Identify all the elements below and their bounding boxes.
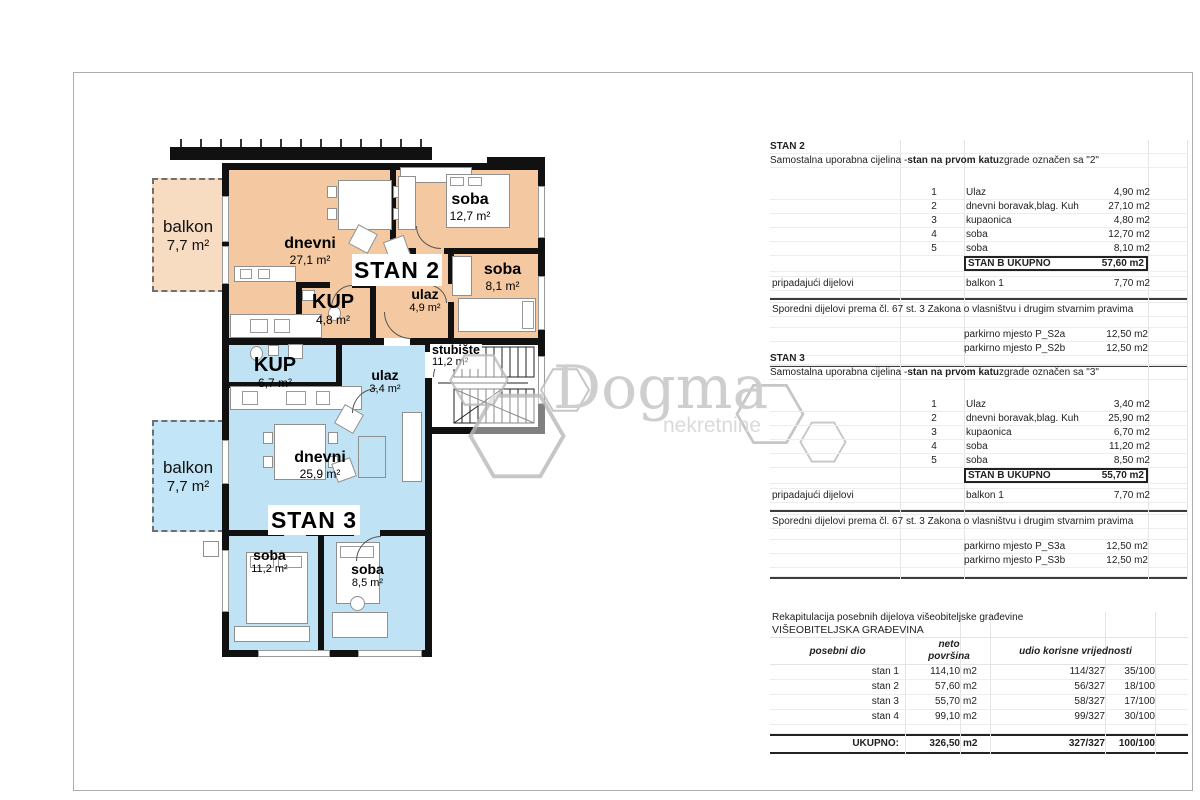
room-area: 27,1 m²: [255, 254, 365, 267]
pripadajuci-area: 7,70 m2: [1086, 489, 1152, 502]
sink: [242, 391, 258, 405]
room-label-dnevni-stan3: dnevni 25,9 m²: [265, 450, 375, 480]
room-area: 12,7 m²: [425, 210, 515, 223]
sporedni-row: Sporedni dijelovi prema čl. 67 st. 3 Zak…: [770, 515, 1188, 529]
stan-name: stan 4: [770, 710, 905, 724]
spacer: [770, 529, 1188, 540]
floor-plan-sheet: balkon 7,7 m² balkon 7,7 m²: [0, 0, 1200, 800]
unit-area: 27,10 m2: [1086, 200, 1152, 213]
room-label-kup-stan2: KUP 4,8 m²: [300, 292, 366, 327]
parking-row: parkirno mjesto P_S3b12,50 m2: [770, 554, 1188, 568]
subtitle-suffix: zgrade označen sa "3": [999, 366, 1099, 379]
table-subtitle-row: Samostalna uporabna cijelina - stan na p…: [770, 154, 1188, 168]
stove: [286, 391, 306, 405]
recap-total-row: UKUPNO:326,50m2327/327100/100: [770, 734, 1188, 754]
room-label-soba-112: soba 11,2 m²: [232, 548, 307, 575]
unit: m2: [960, 695, 990, 709]
spacer: [770, 317, 1188, 328]
pct: 35/100: [1105, 665, 1155, 679]
unit-area: 11,20 m2: [1086, 440, 1152, 453]
unit-name: Ulaz: [966, 398, 1086, 411]
room-label-soba-81: soba 8,1 m²: [460, 262, 545, 292]
unit-area: 4,80 m2: [1086, 214, 1152, 227]
stan-name: stan 2: [770, 680, 905, 694]
pct: 30/100: [1105, 710, 1155, 724]
unit-num: 4: [902, 440, 966, 453]
spacer: [770, 291, 1188, 298]
table-stan3: STAN 3 Samostalna uporabna cijelina - st…: [770, 352, 1188, 579]
stan2-title-box: STAN 2: [352, 254, 442, 286]
table-title-row: STAN 2: [770, 140, 1188, 154]
pripadajuci-row: pripadajući dijelovibalkon 17,70 m2: [770, 277, 1188, 291]
room-label-soba-85: soba 8,5 m²: [330, 562, 405, 589]
balcony-door: [222, 440, 229, 484]
window: [222, 196, 229, 242]
unit-row: 4soba11,20 m2: [770, 440, 1188, 454]
room-name: soba: [330, 562, 405, 577]
total-row: STAN B UKUPNO57,60 m2: [770, 256, 1188, 272]
subtitle-prefix: Samostalna uporabna cijelina -: [770, 366, 907, 379]
wall: [296, 282, 330, 288]
hob: [240, 269, 252, 279]
entry-door-stan2: [384, 338, 410, 346]
unit-name: soba: [966, 454, 1086, 467]
railing-top: [170, 147, 432, 160]
unit-num: 1: [902, 186, 966, 199]
unit-area: 12,70 m2: [1086, 228, 1152, 241]
unit-name: kupaonica: [966, 426, 1086, 439]
balcony-label: balkon: [163, 217, 213, 237]
wall: [444, 248, 545, 254]
unit-area: 25,90 m2: [1086, 412, 1152, 425]
bench: [234, 626, 310, 642]
total-share: 327/327: [990, 736, 1105, 752]
wardrobe: [398, 176, 416, 230]
parking-name: parkirno mjesto P_S3b: [964, 554, 1084, 567]
chair: [327, 186, 337, 198]
room-name: dnevni: [265, 450, 375, 467]
col-posebni-dio: posebni dio: [770, 646, 905, 657]
subtitle-suffix: zgrade označen sa "2": [999, 154, 1099, 167]
parking-area: 12,50 m2: [1084, 554, 1150, 567]
table-title: STAN 3: [770, 352, 805, 365]
unit-name: soba: [966, 440, 1086, 453]
parking-row: parkirno mjesto P_S2a12,50 m2: [770, 328, 1188, 342]
room-name: KUP: [300, 292, 366, 313]
wall: [336, 338, 342, 388]
wall: [370, 282, 376, 344]
room-name: KUP: [240, 355, 310, 376]
section-divider: [770, 577, 1188, 579]
total-label: STAN B UKUPNO: [966, 470, 1102, 481]
room-label-ulaz-stan3: ulaz 3,4 m²: [352, 368, 418, 395]
stove: [250, 319, 268, 333]
parking-name: parkirno mjesto P_S2a: [964, 328, 1084, 341]
recap-row: stan 499,10m299/32730/100: [770, 710, 1188, 725]
stan-name: stan 1: [770, 665, 905, 679]
room-name: dnevni: [255, 236, 365, 253]
sink: [274, 319, 290, 333]
table-subtitle-row: Samostalna uporabna cijelina - stan na p…: [770, 366, 1188, 380]
room-name: soba: [232, 548, 307, 563]
dining-table: [338, 180, 392, 230]
window: [538, 186, 545, 238]
stan-area: 114,10: [905, 665, 960, 679]
room-name: soba: [460, 262, 545, 279]
pct: 18/100: [1105, 680, 1155, 694]
chair: [327, 208, 337, 220]
unit-row: 1Ulaz3,40 m2: [770, 398, 1188, 412]
unit-area: 8,50 m2: [1086, 454, 1152, 467]
balcony-label: balkon: [163, 458, 213, 478]
unit-num: 1: [902, 398, 966, 411]
pripadajuci-label: pripadajući dijelovi: [770, 489, 902, 502]
unit-area: 3,40 m2: [1086, 398, 1152, 411]
desk: [332, 612, 388, 638]
total-label: UKUPNO:: [770, 736, 905, 752]
stan-area: 99,10: [905, 710, 960, 724]
recap-subtitle-row: VIŠEOBITELJSKA GRAĐEVINA: [770, 624, 1188, 637]
pripadajuci-name: balkon 1: [966, 489, 1086, 502]
spacer: [770, 503, 1188, 510]
sofa: [402, 412, 422, 482]
share: 58/327: [990, 695, 1105, 709]
unit-name: dnevni boravak,blag. Kuh: [966, 200, 1086, 213]
total-area: 57,60 m2: [1102, 258, 1146, 269]
stan-area: 55,70: [905, 695, 960, 709]
wall: [318, 536, 324, 657]
unit-num: 3: [902, 426, 966, 439]
parking-name: parkirno mjesto P_S3a: [964, 540, 1084, 553]
table-title: STAN 2: [770, 140, 805, 153]
unit-num: 3: [902, 214, 966, 227]
parking-area: 12,50 m2: [1084, 328, 1150, 341]
pillow: [522, 301, 534, 329]
unit-row: 3kupaonica4,80 m2: [770, 214, 1188, 228]
room-area: 25,9 m²: [265, 468, 375, 481]
unit-area: 8,10 m2: [1086, 242, 1152, 255]
window: [258, 650, 330, 657]
utility-box: [203, 541, 219, 557]
window: [222, 550, 229, 612]
balcony-stan2: balkon 7,7 m²: [152, 178, 224, 292]
unit-area: 6,70 m2: [1086, 426, 1152, 439]
stan3-title-box: STAN 3: [268, 505, 360, 535]
chair: [328, 432, 338, 444]
unit-name: kupaonica: [966, 214, 1086, 227]
unit: m2: [960, 736, 990, 752]
sporedni-row: Sporedni dijelovi prema čl. 67 st. 3 Zak…: [770, 303, 1188, 317]
spacer: [770, 168, 1188, 186]
recap-row: stan 257,60m256/32718/100: [770, 680, 1188, 695]
railing-ticks: [180, 139, 426, 147]
col-udio: udio korisne vrijednosti: [993, 646, 1158, 657]
balcony-area: 7,7 m²: [167, 237, 210, 254]
pripadajuci-name: balkon 1: [966, 277, 1086, 290]
unit-name: soba: [966, 228, 1086, 241]
table-recap: Rekapitulacija posebnih dijelova višeobi…: [770, 612, 1188, 754]
fridge: [316, 391, 330, 405]
pct: 17/100: [1105, 695, 1155, 709]
total-area: 55,70 m2: [1102, 470, 1146, 481]
unit-row: 3kupaonica6,70 m2: [770, 426, 1188, 440]
table-title-row: STAN 3: [770, 352, 1188, 366]
unit-num: 5: [902, 454, 966, 467]
room-area: 4,9 m²: [392, 303, 458, 315]
unit-num: 5: [902, 242, 966, 255]
balcony-door: [222, 246, 229, 284]
parking-row: parkirno mjesto P_S3a12,50 m2: [770, 540, 1188, 554]
recap-header-row: posebni dio netopovršina udio korisne vr…: [770, 637, 1188, 665]
recap-row: stan 355,70m258/32717/100: [770, 695, 1188, 710]
room-label-dnevni-stan2: dnevni 27,1 m²: [255, 236, 365, 266]
unit-name: soba: [966, 242, 1086, 255]
balcony-area: 7,7 m²: [167, 478, 210, 495]
recap-row: stan 1114,10m2114/32735/100: [770, 665, 1188, 680]
unit-row: 2dnevni boravak,blag. Kuh27,10 m2: [770, 200, 1188, 214]
table-stan2: STAN 2 Samostalna uporabna cijelina - st…: [770, 140, 1188, 367]
unit-row: 2dnevni boravak,blag. Kuh25,90 m2: [770, 412, 1188, 426]
recap-title: Rekapitulacija posebnih dijelova višeobi…: [772, 612, 1023, 624]
stan-name: stan 3: [770, 695, 905, 709]
unit: m2: [960, 710, 990, 724]
pillow: [450, 177, 464, 186]
room-label-soba-127: soba 12,7 m²: [425, 192, 515, 222]
share: 99/327: [990, 710, 1105, 724]
subtitle-bold: stan na prvom katu: [907, 154, 999, 167]
room-area: 8,5 m²: [330, 578, 405, 590]
unit: m2: [960, 665, 990, 679]
recap-subtitle: VIŠEOBITELJSKA GRAĐEVINA: [772, 624, 924, 637]
room-label-ulaz-stan2: ulaz 4,9 m²: [392, 287, 458, 314]
unit-num: 2: [902, 200, 966, 213]
room-label-stubiste: stubište 11,2 m²: [430, 344, 482, 369]
unit-row: 5soba8,50 m2: [770, 454, 1188, 468]
unit-area: 4,90 m2: [1086, 186, 1152, 199]
room-label-kup-stan3: KUP 6,7 m²: [240, 355, 310, 390]
spacer: [770, 725, 1188, 734]
sporedni-text: Sporedni dijelovi prema čl. 67 st. 3 Zak…: [772, 515, 1133, 528]
unit: m2: [960, 680, 990, 694]
room-name: ulaz: [352, 368, 418, 383]
window: [358, 650, 422, 657]
room-name: ulaz: [392, 287, 458, 302]
pripadajuci-area: 7,70 m2: [1086, 277, 1152, 290]
total-area: 326,50: [905, 736, 960, 752]
unit-row: 5soba8,10 m2: [770, 242, 1188, 256]
spacer: [770, 380, 1188, 398]
unit-row: 4soba12,70 m2: [770, 228, 1188, 242]
share: 56/327: [990, 680, 1105, 694]
pripadajuci-row: pripadajući dijelovibalkon 17,70 m2: [770, 489, 1188, 503]
unit-num: 4: [902, 228, 966, 241]
unit-name: dnevni boravak,blag. Kuh: [966, 412, 1086, 425]
col-neto-povrsina: netopovršina: [905, 639, 993, 663]
unit-num: 2: [902, 412, 966, 425]
total-label: STAN B UKUPNO: [966, 258, 1102, 269]
desk-chair: [350, 596, 365, 611]
room-name: soba: [425, 192, 515, 209]
unit-name: Ulaz: [966, 186, 1086, 199]
parking-area: 12,50 m2: [1084, 540, 1150, 553]
room-area: 8,1 m²: [460, 280, 545, 293]
sporedni-text: Sporedni dijelovi prema čl. 67 st. 3 Zak…: [772, 303, 1133, 316]
room-area: 11,2 m²: [432, 357, 480, 369]
subtitle-prefix: Samostalna uporabna cijelina -: [770, 154, 907, 167]
room-area: 4,8 m²: [300, 314, 366, 327]
share: 114/327: [990, 665, 1105, 679]
unit-row: 1Ulaz4,90 m2: [770, 186, 1188, 200]
subtitle-bold: stan na prvom katu: [907, 366, 999, 379]
spacer: [770, 568, 1188, 577]
chair: [263, 432, 273, 444]
sink: [258, 269, 270, 279]
pillow: [468, 177, 482, 186]
balcony-stan3: balkon 7,7 m²: [152, 420, 224, 532]
recap-title-row: Rekapitulacija posebnih dijelova višeobi…: [770, 612, 1188, 624]
room-area: 11,2 m²: [232, 564, 307, 576]
room-area: 3,4 m²: [352, 384, 418, 396]
total-pct: 100/100: [1105, 736, 1155, 752]
room-area: 6,7 m²: [240, 377, 310, 390]
pripadajuci-label: pripadajući dijelovi: [770, 277, 902, 290]
total-row: STAN B UKUPNO55,70 m2: [770, 468, 1188, 484]
stan-area: 57,60: [905, 680, 960, 694]
wall: [380, 530, 432, 536]
window: [538, 356, 545, 404]
